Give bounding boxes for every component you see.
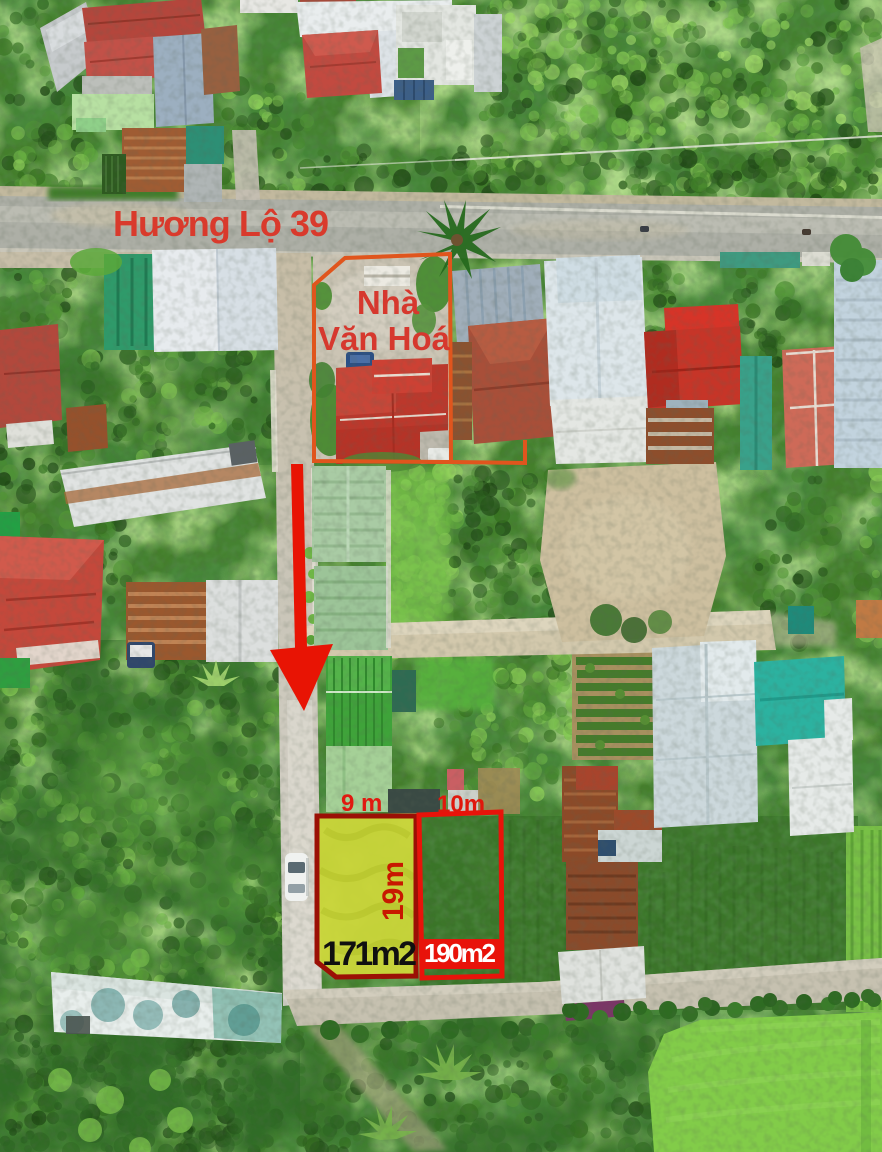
svg-text:171m2: 171m2 (322, 935, 417, 973)
svg-text:Nhà: Nhà (357, 284, 420, 321)
svg-text:Văn Hoá: Văn Hoá (318, 320, 451, 357)
svg-text:Hương Lộ 39: Hương Lộ 39 (113, 203, 329, 244)
svg-text:9 m: 9 m (341, 790, 382, 817)
svg-text:190m2: 190m2 (424, 938, 496, 968)
svg-text:10m: 10m (437, 791, 485, 818)
svg-text:19m: 19m (377, 861, 410, 921)
